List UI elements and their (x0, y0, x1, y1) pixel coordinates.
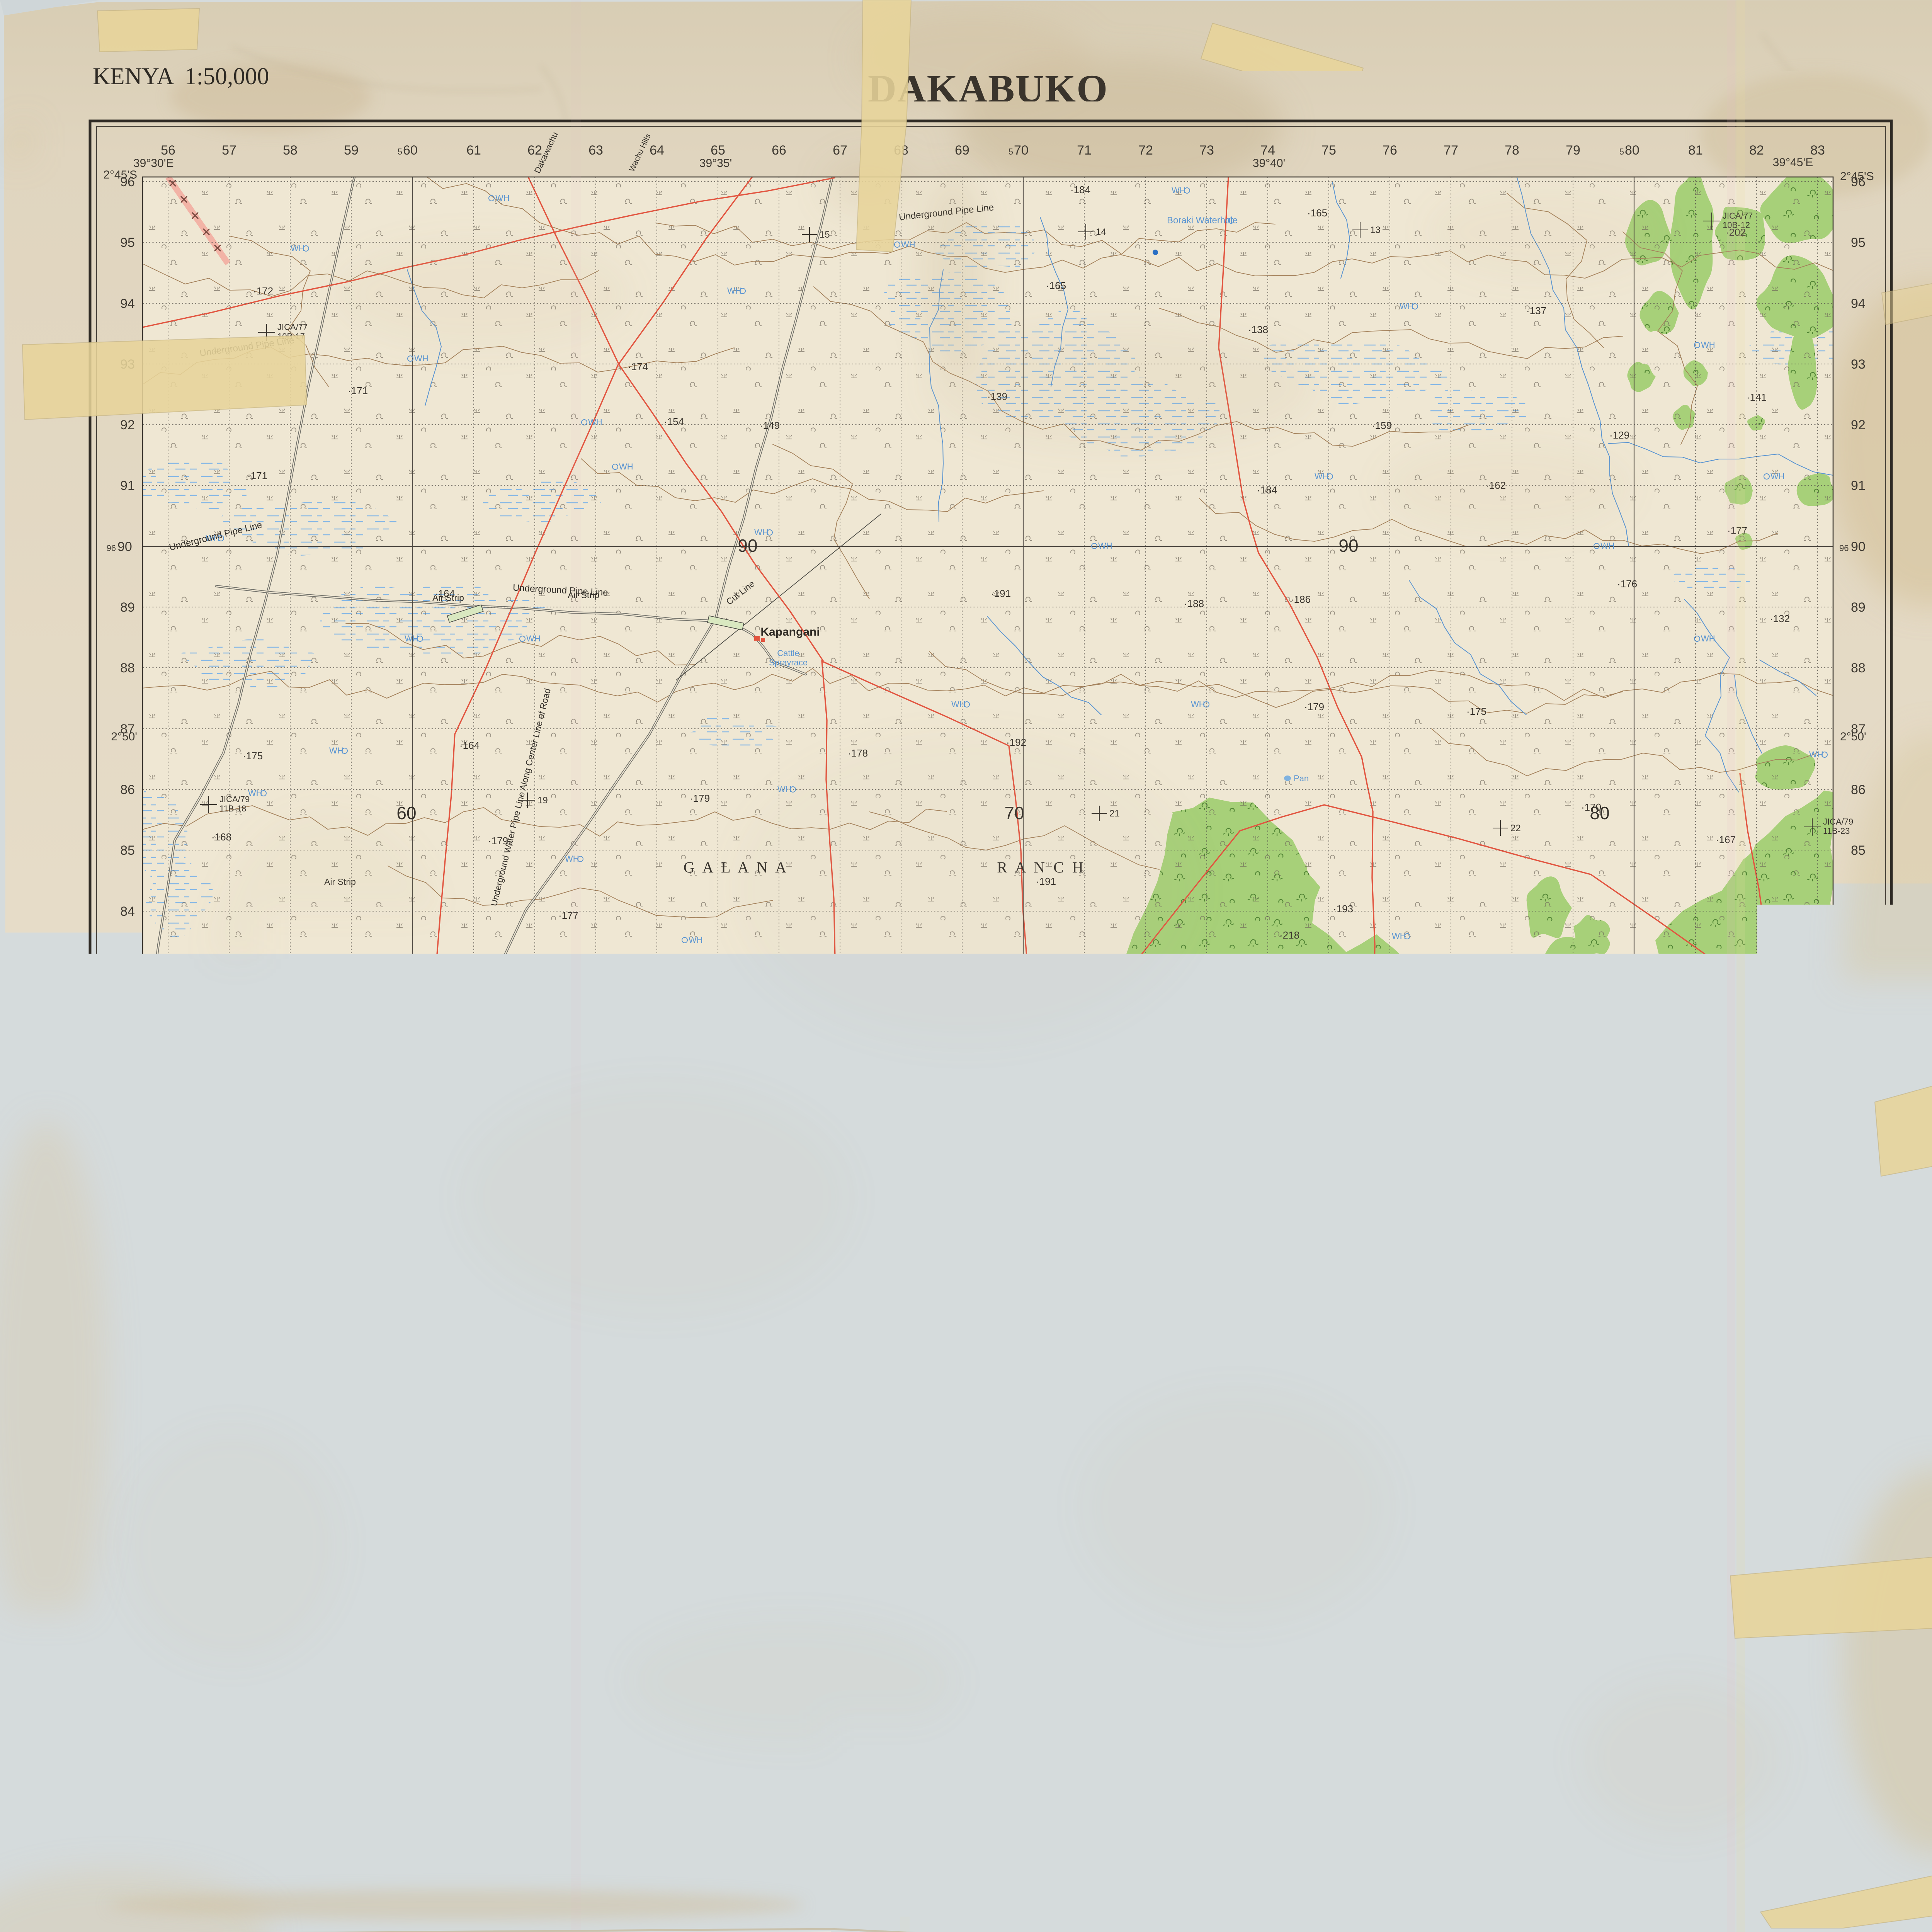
svg-text:WH: WH (1639, 966, 1653, 976)
svg-text:Cattle: Cattle (777, 648, 799, 658)
svg-text:80: 80 (1588, 1403, 1607, 1423)
svg-text:·194: ·194 (1376, 1031, 1396, 1042)
svg-text:59: 59 (344, 143, 359, 158)
svg-text:WH: WH (1809, 750, 1823, 759)
svg-text:Air Strip: Air Strip (378, 1374, 410, 1384)
svg-text:Edition: Edition (1772, 90, 1801, 100)
svg-text:·164: ·164 (639, 1053, 659, 1065)
svg-text:·175: ·175 (243, 750, 263, 762)
svg-text:56: 56 (161, 143, 175, 158)
svg-text:60000mE: 60000mE (403, 1894, 452, 1907)
svg-text:3°00'S: 3°00'S (1840, 1856, 1874, 1869)
svg-text:69: 69 (120, 1816, 135, 1830)
svg-text:·194: ·194 (1597, 1069, 1617, 1080)
svg-text:85: 85 (1851, 843, 1866, 858)
svg-text:88: 88 (120, 661, 135, 675)
svg-text:·136: ·136 (1616, 1833, 1636, 1845)
svg-text:73: 73 (1199, 143, 1214, 158)
svg-text:WH: WH (951, 699, 966, 709)
svg-text:Air Strip: Air Strip (927, 1586, 959, 1596)
svg-text:WH: WH (248, 788, 262, 798)
svg-text:90: 90 (1851, 539, 1866, 554)
svg-text:96: 96 (1839, 543, 1849, 553)
svg-text:Air Strip: Air Strip (1122, 1298, 1133, 1330)
svg-text:WH: WH (1701, 634, 1715, 643)
svg-text:·213: ·213 (1750, 1192, 1770, 1203)
svg-text:·218: ·218 (1279, 929, 1299, 941)
svg-text:70: 70 (1851, 1755, 1866, 1770)
svg-text:69: 69 (955, 1893, 969, 1907)
svg-text:·207: ·207 (1800, 1699, 1820, 1711)
svg-text:GURUJO: GURUJO (1374, 1706, 1439, 1722)
svg-text:92: 92 (1851, 418, 1866, 432)
svg-text:79: 79 (1851, 1208, 1866, 1223)
svg-text:·131: ·131 (278, 1698, 298, 1710)
svg-text:96: 96 (1839, 1151, 1849, 1161)
svg-text:356: 356 (1216, 1149, 1234, 1161)
svg-text:WH: WH (901, 240, 915, 249)
svg-text:81: 81 (1851, 1087, 1866, 1101)
svg-text:91: 91 (120, 478, 135, 493)
svg-text:Air Strip: Air Strip (993, 1053, 1024, 1063)
svg-text:70: 70 (1014, 1893, 1029, 1907)
svg-text:68: 68 (894, 1893, 908, 1907)
svg-text:BH: BH (1037, 1086, 1049, 1095)
svg-text:39°30'E: 39°30'E (133, 157, 173, 170)
svg-text:·171: ·171 (348, 385, 368, 396)
svg-text:14: 14 (1030, 1315, 1041, 1325)
svg-text:·161: ·161 (810, 1016, 830, 1028)
svg-text:WH: WH (1191, 699, 1205, 709)
svg-text:WH: WH (754, 527, 769, 537)
svg-text:3°00'S: 3°00'S (103, 1856, 137, 1869)
svg-text:·122: ·122 (596, 1630, 616, 1642)
svg-text:78: 78 (1851, 1269, 1866, 1283)
svg-text:WH: WH (1315, 471, 1329, 481)
svg-text:Kapangani: Kapangani (760, 626, 820, 638)
svg-text:14: 14 (1096, 227, 1106, 237)
svg-text:·148: ·148 (1291, 1779, 1311, 1791)
svg-text:·186: ·186 (1777, 1832, 1798, 1844)
svg-text:WH: WH (843, 1066, 857, 1076)
svg-text:95: 95 (120, 235, 135, 250)
svg-text:89: 89 (120, 600, 135, 615)
svg-text:86: 86 (1851, 782, 1866, 797)
svg-text:·175: ·175 (1466, 706, 1486, 717)
svg-text:·181: ·181 (1567, 1646, 1587, 1657)
svg-text:67: 67 (833, 1893, 847, 1907)
svg-text:58: 58 (283, 143, 298, 158)
svg-text:Kasikini: Kasikini (1755, 1479, 1792, 1491)
svg-text:·170: ·170 (1581, 801, 1601, 813)
svg-text:75: 75 (1321, 1893, 1336, 1907)
svg-text:96: 96 (107, 1151, 116, 1161)
svg-text:60: 60 (403, 143, 418, 158)
svg-text:·186: ·186 (1291, 594, 1311, 605)
svg-text:80: 80 (1851, 1147, 1866, 1162)
svg-text:·164: ·164 (182, 957, 202, 968)
svg-text:1-JICA: 1-JICA (1856, 90, 1884, 100)
svg-text:·188: ·188 (1184, 598, 1204, 609)
svg-text:·122: ·122 (1116, 1725, 1136, 1736)
svg-text:·176: ·176 (1652, 1367, 1672, 1379)
svg-text:5: 5 (398, 147, 402, 156)
svg-text:·149: ·149 (760, 420, 780, 431)
svg-text:·176: ·176 (1617, 578, 1637, 590)
svg-text:58: 58 (283, 1893, 298, 1907)
svg-text:16: 16 (820, 1314, 830, 1324)
svg-text:70: 70 (1003, 1418, 1023, 1438)
svg-text:69: 69 (1851, 1816, 1866, 1830)
svg-text:WH: WH (372, 1723, 386, 1733)
svg-text:72: 72 (1138, 143, 1153, 158)
svg-text:75: 75 (120, 1451, 135, 1466)
svg-text:72: 72 (1851, 1633, 1866, 1648)
svg-text:Sprayrace: Sprayrace (769, 658, 808, 667)
svg-text:12B-18: 12B-18 (202, 1348, 230, 1357)
svg-text:73: 73 (1199, 1893, 1214, 1907)
svg-text:76: 76 (1851, 1390, 1866, 1405)
svg-text:WH: WH (1029, 1325, 1043, 1335)
svg-text:Pan: Pan (1450, 1655, 1465, 1664)
svg-text:·122: ·122 (811, 1372, 832, 1384)
svg-text:2°45'S: 2°45'S (1840, 170, 1874, 183)
svg-text:94: 94 (120, 296, 135, 311)
svg-text:·108: ·108 (1122, 1818, 1142, 1830)
svg-text:96: 96 (107, 1759, 116, 1769)
svg-text:96: 96 (107, 543, 116, 553)
svg-text:WH: WH (1172, 185, 1186, 195)
svg-text:BH: BH (1156, 1676, 1168, 1686)
svg-text:80: 80 (1625, 1893, 1639, 1907)
svg-text:86: 86 (120, 782, 135, 797)
svg-text:Pan: Pan (1294, 774, 1309, 783)
svg-text:93: 93 (1851, 357, 1866, 372)
svg-text:84: 84 (120, 904, 135, 919)
svg-text:WH: WH (341, 1399, 355, 1408)
svg-text:WH: WH (1701, 340, 1715, 350)
svg-text:·129: ·129 (1609, 429, 1629, 441)
svg-text:96: 96 (1839, 1759, 1849, 1769)
svg-text:·163: ·163 (1070, 1212, 1090, 1223)
svg-text:81: 81 (1688, 1893, 1703, 1907)
svg-text:83: 83 (1851, 965, 1866, 980)
svg-text:81: 81 (120, 1087, 135, 1101)
svg-text:10B-12: 10B-12 (1723, 220, 1750, 230)
svg-text:2°55': 2°55' (1840, 1301, 1866, 1313)
svg-text:·171: ·171 (247, 470, 267, 481)
svg-text:77: 77 (1444, 143, 1458, 158)
svg-text:·144: ·144 (1020, 1801, 1040, 1812)
svg-text:·152: ·152 (935, 1772, 955, 1784)
svg-text:·184: ·184 (1257, 484, 1277, 496)
svg-text:WH: WH (1291, 1128, 1306, 1138)
svg-text:·191: ·191 (991, 588, 1011, 599)
svg-text:WH: WH (588, 417, 602, 427)
svg-text:·203: ·203 (1788, 1288, 1808, 1300)
svg-text:82: 82 (1749, 143, 1764, 158)
svg-text:77: 77 (1444, 1893, 1458, 1907)
svg-text:WH: WH (951, 1175, 966, 1184)
svg-text:·182: ·182 (1673, 1311, 1693, 1323)
svg-text:·165: ·165 (1307, 207, 1327, 219)
svg-text:·185: ·185 (1482, 1860, 1502, 1872)
svg-text:39°30'E: 39°30'E (128, 1879, 168, 1892)
svg-text:2°45'S: 2°45'S (103, 168, 137, 181)
svg-text:90: 90 (738, 536, 757, 556)
svg-text:39°40': 39°40' (1238, 1879, 1270, 1892)
svg-text:WH: WH (1392, 931, 1406, 941)
svg-text:·138: ·138 (1248, 324, 1268, 335)
svg-text:60: 60 (396, 803, 416, 823)
svg-text:·147: ·147 (632, 1422, 652, 1434)
svg-text:71: 71 (1077, 1893, 1092, 1907)
svg-text:69: 69 (955, 143, 969, 158)
svg-text:19: 19 (537, 795, 548, 806)
svg-text:83: 83 (120, 965, 135, 980)
svg-text:233: 233 (1444, 1691, 1460, 1702)
svg-text:·124: ·124 (1067, 1626, 1087, 1637)
svg-text:95: 95 (1851, 235, 1866, 250)
svg-text:2°50': 2°50' (111, 730, 137, 743)
svg-text:77: 77 (1851, 1330, 1866, 1344)
svg-text:Series: Series (1772, 59, 1799, 69)
svg-text:76: 76 (1383, 1893, 1397, 1907)
svg-text:·159: ·159 (1372, 420, 1392, 431)
svg-text:·264: ·264 (1397, 1219, 1417, 1230)
svg-text:·172: ·172 (253, 285, 273, 297)
svg-text:90: 90 (1338, 536, 1358, 556)
svg-text:63: 63 (588, 1893, 603, 1907)
svg-text:Air Strip: Air Strip (1149, 1175, 1181, 1185)
svg-text:76: 76 (1383, 143, 1397, 158)
svg-text:WH: WH (329, 746, 344, 755)
svg-text:·128: ·128 (1206, 1675, 1226, 1687)
svg-text:Published by Survey of Kenya 1: Published by Survey of Kenya 1981 (93, 1930, 252, 1932)
svg-text:·168: ·168 (211, 831, 231, 843)
svg-text:354: 354 (1101, 1158, 1119, 1170)
svg-text:72: 72 (1138, 1893, 1153, 1907)
svg-text:60: 60 (400, 1420, 419, 1440)
svg-text:65: 65 (711, 143, 725, 158)
svg-text:·184: ·184 (1070, 184, 1090, 196)
svg-text:62: 62 (527, 1893, 542, 1907)
svg-text:64: 64 (650, 1893, 664, 1907)
svg-text:39°40': 39°40' (1253, 157, 1285, 170)
svg-text:78: 78 (1505, 143, 1519, 158)
svg-text:57: 57 (222, 143, 236, 158)
svg-text:·193: ·193 (1333, 903, 1353, 915)
svg-text:WH: WH (1492, 1275, 1507, 1285)
svg-text:DAKA-BUKO: DAKA-BUKO (1205, 1225, 1307, 1242)
svg-text:·216: ·216 (1540, 1314, 1560, 1325)
svg-text:71: 71 (1851, 1694, 1866, 1709)
svg-text:88: 88 (1851, 661, 1866, 675)
svg-text:WH: WH (526, 634, 541, 643)
svg-text:81: 81 (1688, 143, 1703, 158)
svg-text:JICA/79: JICA/79 (1823, 817, 1853, 827)
svg-text:·138: ·138 (885, 1150, 905, 1162)
svg-text:39°35': 39°35' (704, 1879, 736, 1892)
svg-text:WH: WH (1067, 1754, 1082, 1764)
svg-text:Sheet: Sheet (1772, 76, 1798, 86)
svg-text:5: 5 (1009, 1896, 1013, 1906)
svg-text:89: 89 (1851, 600, 1866, 615)
svg-text:WH: WH (405, 634, 419, 643)
svg-text:66: 66 (772, 143, 786, 158)
svg-text:·179: ·179 (690, 793, 710, 804)
svg-text:·121: ·121 (501, 1707, 521, 1718)
svg-text:·154: ·154 (664, 416, 684, 427)
svg-text:WH: WH (511, 1573, 525, 1582)
svg-text:Y731: Y731 (1863, 59, 1884, 69)
svg-text:·156: ·156 (509, 1024, 529, 1035)
svg-text:WH: WH (414, 354, 429, 363)
svg-text:WH: WH (1570, 1437, 1584, 1447)
svg-text:72: 72 (120, 1633, 135, 1648)
svg-text:39°45'E: 39°45'E (1773, 156, 1813, 169)
svg-text:70: 70 (117, 1755, 132, 1770)
svg-text:94: 94 (1851, 296, 1866, 311)
svg-text:WH: WH (194, 1036, 208, 1045)
svg-text:·164: ·164 (459, 740, 480, 751)
svg-text:Air Strip: Air Strip (1126, 1696, 1136, 1728)
svg-text:61: 61 (466, 143, 481, 158)
svg-text:56: 56 (161, 1893, 175, 1907)
svg-text:75: 75 (1851, 1451, 1866, 1466)
svg-text:85: 85 (120, 843, 135, 858)
svg-text:13: 13 (1370, 225, 1381, 235)
svg-text:WH: WH (291, 243, 305, 253)
svg-text:74: 74 (1851, 1512, 1866, 1527)
svg-text:90: 90 (117, 539, 132, 554)
svg-text:186/3: 186/3 (1846, 72, 1884, 89)
svg-text:5: 5 (1619, 1896, 1624, 1906)
svg-text:83: 83 (1810, 143, 1825, 158)
svg-text:5: 5 (1009, 147, 1013, 156)
svg-text:·165: ·165 (1046, 280, 1066, 291)
svg-text:WH: WH (634, 1758, 649, 1768)
svg-text:·135: ·135 (788, 1311, 808, 1323)
svg-text:186 ST 2: 186 ST 2 (1130, 1130, 1177, 1143)
svg-text:JICA/77: JICA/77 (202, 1338, 232, 1348)
svg-text:67: 67 (833, 143, 847, 158)
svg-text:WH: WH (1400, 301, 1414, 311)
svg-text:22: 22 (1510, 823, 1521, 833)
svg-text:66: 66 (772, 1893, 786, 1907)
svg-text:75: 75 (1321, 143, 1336, 158)
svg-text:74: 74 (1260, 143, 1275, 158)
svg-text:·132: ·132 (1770, 613, 1790, 624)
svg-text:2°50': 2°50' (1840, 730, 1866, 743)
svg-text:70: 70 (1014, 143, 1029, 158)
svg-text:WH: WH (1600, 541, 1615, 551)
svg-text:77: 77 (120, 1330, 135, 1344)
svg-text:91: 91 (1851, 478, 1866, 493)
svg-text:·136: ·136 (646, 1620, 667, 1631)
svg-text:·164: ·164 (435, 588, 455, 599)
svg-text:WH: WH (1392, 1588, 1406, 1598)
svg-text:·144: ·144 (218, 1290, 238, 1301)
svg-text:11B-18: 11B-18 (219, 804, 246, 813)
svg-text:78: 78 (1505, 1893, 1519, 1907)
svg-text:59: 59 (344, 1893, 359, 1907)
svg-text:39°35': 39°35' (699, 157, 732, 170)
svg-text:15: 15 (820, 230, 830, 240)
svg-text:80: 80 (1349, 1145, 1369, 1165)
svg-text:17: 17 (497, 1332, 507, 1342)
svg-text:WH: WH (1500, 1777, 1514, 1787)
svg-text:79: 79 (120, 1208, 135, 1223)
svg-text:61: 61 (466, 1893, 481, 1907)
svg-text:80: 80 (117, 1147, 132, 1162)
svg-text:WH: WH (727, 286, 742, 296)
svg-text:·151: ·151 (1619, 1546, 1639, 1558)
svg-text:2°55': 2°55' (111, 1301, 137, 1313)
svg-text:82: 82 (1851, 1026, 1866, 1040)
svg-text:·174: ·174 (628, 361, 648, 372)
svg-text:·263: ·263 (1418, 1467, 1439, 1479)
svg-text:79: 79 (1566, 143, 1580, 158)
svg-text:64: 64 (650, 143, 664, 158)
svg-text:71: 71 (1077, 143, 1092, 158)
svg-text:KENYA 1:50,000: KENYA 1:50,000 (93, 63, 269, 90)
svg-text:JICA/79: JICA/79 (219, 794, 250, 804)
svg-text:WH: WH (689, 1522, 703, 1532)
svg-text:57: 57 (222, 1893, 236, 1907)
svg-text:65: 65 (711, 1893, 725, 1907)
svg-text:WH: WH (1423, 1843, 1437, 1853)
svg-text:WH: WH (1098, 541, 1112, 551)
svg-text:·186: ·186 (1679, 1146, 1699, 1158)
svg-text:82: 82 (120, 1026, 135, 1040)
svg-text:·179: ·179 (1304, 701, 1324, 713)
svg-text:JICA/77: JICA/77 (277, 322, 308, 332)
svg-text:11B-23: 11B-23 (1823, 826, 1850, 836)
svg-text:76: 76 (120, 1390, 135, 1405)
svg-text:·141: ·141 (1747, 391, 1767, 403)
svg-text:5: 5 (1619, 147, 1624, 156)
svg-text:74: 74 (1260, 1893, 1275, 1907)
svg-text:92: 92 (120, 418, 135, 432)
svg-text:·157: ·157 (247, 1803, 267, 1815)
svg-text:84: 84 (1851, 904, 1866, 919)
svg-text:WH: WH (1770, 471, 1785, 481)
svg-text:79: 79 (1566, 1893, 1580, 1907)
svg-text:·156: ·156 (216, 1145, 236, 1156)
svg-text:WH: WH (619, 462, 633, 471)
svg-text:WH: WH (495, 193, 510, 203)
svg-text:63: 63 (588, 143, 603, 158)
svg-text:5: 5 (398, 1896, 402, 1906)
svg-text:82: 82 (1749, 1893, 1764, 1907)
svg-text:78: 78 (120, 1269, 135, 1283)
svg-text:71: 71 (120, 1694, 135, 1709)
svg-text:4: 4 (1909, 67, 1923, 99)
svg-text:·147: ·147 (468, 1486, 488, 1498)
svg-text:WH: WH (689, 935, 703, 945)
svg-text:·137: ·137 (1526, 305, 1546, 316)
svg-text:·154: ·154 (398, 1133, 418, 1145)
svg-text:80: 80 (1625, 143, 1639, 158)
svg-text:WH: WH (982, 1430, 997, 1439)
svg-text:·126: ·126 (514, 1316, 534, 1327)
svg-text:·185: ·185 (1258, 1832, 1278, 1844)
svg-text:70: 70 (1331, 1753, 1350, 1774)
